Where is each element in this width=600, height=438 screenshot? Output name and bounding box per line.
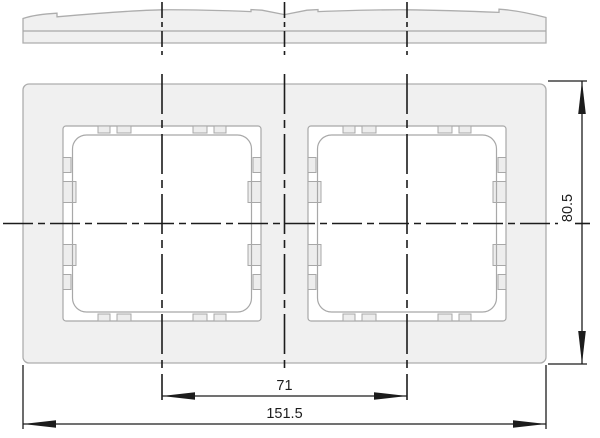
dim-label-center-spacing: 71 (276, 378, 292, 394)
dim-arrow-right (513, 420, 546, 428)
dim-label-overall-width: 151.5 (266, 406, 302, 422)
dim-overall-width: 151.5 (23, 365, 546, 429)
dim-label-overall-height: 80.5 (560, 194, 576, 222)
side-profile-view (23, 2, 546, 55)
drawing-canvas: 80.5 71 151.5 (0, 0, 600, 438)
dim-arrow-left (162, 392, 195, 400)
dim-arrow-up (578, 81, 586, 114)
dim-overall-height: 80.5 (548, 81, 587, 364)
dimension-drawing: 80.5 71 151.5 (0, 0, 600, 438)
front-view (3, 74, 590, 400)
dim-arrow-right (374, 392, 407, 400)
dim-arrow-left (23, 420, 56, 428)
dim-center-spacing: 71 (162, 378, 407, 400)
dim-arrow-down (578, 331, 586, 364)
